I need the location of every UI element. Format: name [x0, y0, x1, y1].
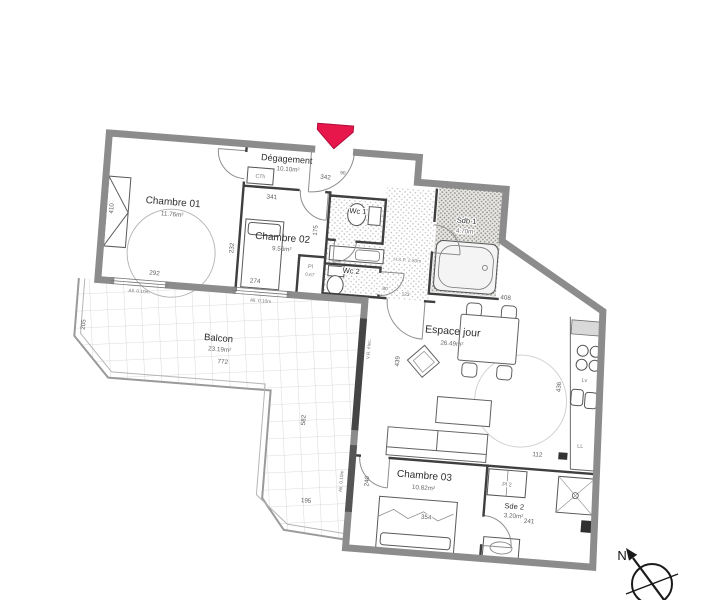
- dim-205: 205: [80, 319, 88, 331]
- living-furniture: [386, 297, 520, 464]
- living-door: [384, 298, 425, 339]
- chair: [496, 365, 512, 380]
- toilet-tank: [368, 207, 381, 226]
- floor-plan-page: Balcon 23.19m² 772 205 582 195 All. 0.10…: [0, 0, 716, 600]
- dim-436: 436: [555, 381, 563, 393]
- floor-plan: Balcon 23.19m² 772 205 582 195 All. 0.10…: [0, 0, 716, 600]
- dim-292: 292: [149, 270, 161, 278]
- bathtub: [433, 240, 499, 295]
- kitchen-cabinet: [571, 320, 602, 336]
- washer-label: LL: [577, 444, 584, 450]
- entrance-arrow: [316, 123, 354, 150]
- dim-90: 90: [340, 170, 346, 176]
- entrance-door: [308, 149, 354, 195]
- dim-408: 408: [500, 294, 512, 302]
- compass-arrowhead: [626, 548, 637, 561]
- dim-240: 240: [363, 475, 371, 487]
- sdb-fixtures: [433, 240, 499, 295]
- armchair: [406, 344, 440, 378]
- dim-582: 582: [300, 414, 308, 426]
- degagement-label: Dégagement: [261, 152, 314, 166]
- note-vr-elec: V.R. élec.: [365, 339, 373, 360]
- plan-rotated-group: Balcon 23.19m² 772 205 582 195 All. 0.10…: [59, 106, 625, 568]
- dim-123: 123: [401, 291, 410, 298]
- balcon-label: Balcon: [204, 332, 234, 345]
- dim-175: 175: [312, 224, 320, 236]
- dining-table: [458, 314, 519, 364]
- dim-439: 439: [394, 355, 402, 367]
- chambre02-furniture: [241, 219, 284, 290]
- degagement-area: 10.10m²: [276, 165, 300, 174]
- chambre01-area: 11.76m²: [161, 210, 184, 219]
- dim-241: 241: [524, 518, 536, 526]
- sdb1-label: Sdb 1: [456, 216, 476, 227]
- chair: [461, 362, 477, 377]
- espace-jour-area: 26.49m²: [440, 340, 464, 349]
- sink-bowl: [570, 389, 583, 406]
- dim-354: 354: [421, 514, 433, 522]
- balcony-tiles: [60, 278, 365, 540]
- compass: N: [617, 548, 678, 600]
- sde-fixtures: [482, 469, 597, 565]
- dim-410: 410: [108, 202, 116, 214]
- wc1-label: Wc 1: [349, 206, 367, 216]
- dishwasher-label: Lv: [581, 378, 588, 384]
- chambre03-door: [357, 456, 389, 488]
- coffee-table: [436, 397, 492, 427]
- chambre03-area: 10.82m²: [412, 484, 436, 493]
- cth-label: CTh: [255, 174, 265, 181]
- dim-341: 341: [266, 194, 278, 202]
- chambre01-door: [216, 149, 246, 179]
- sde2-area: 3.20m²: [503, 512, 523, 521]
- placard1-label: Pl: [308, 264, 313, 270]
- dim-195: 195: [301, 497, 313, 505]
- chambre03-furniture: [376, 496, 458, 554]
- chambre02-door: [298, 190, 328, 220]
- appliance-dark: [558, 452, 568, 460]
- dim-772: 772: [217, 358, 229, 366]
- placard1-size: 0.67: [305, 272, 315, 279]
- wc2-label: Wc 2: [342, 266, 360, 276]
- dim-232: 232: [228, 242, 236, 254]
- dim-80: 80: [382, 286, 388, 292]
- sink-bowl: [584, 392, 597, 409]
- cth-unit: CTh: [247, 167, 274, 185]
- placard2-label: Pl 2: [502, 482, 512, 489]
- sde2-label: Sde 2: [504, 501, 524, 512]
- dim-112: 112: [532, 451, 543, 459]
- compass-north-label: N: [617, 548, 626, 563]
- chambre03-label: Chambre 03: [397, 469, 453, 484]
- room-balcon: Balcon 23.19m² 772 205 582 195 All. 0.10…: [60, 278, 365, 540]
- chambre01-label: Chambre 01: [145, 195, 201, 210]
- dim-274: 274: [250, 277, 262, 285]
- dim-342: 342: [320, 174, 332, 182]
